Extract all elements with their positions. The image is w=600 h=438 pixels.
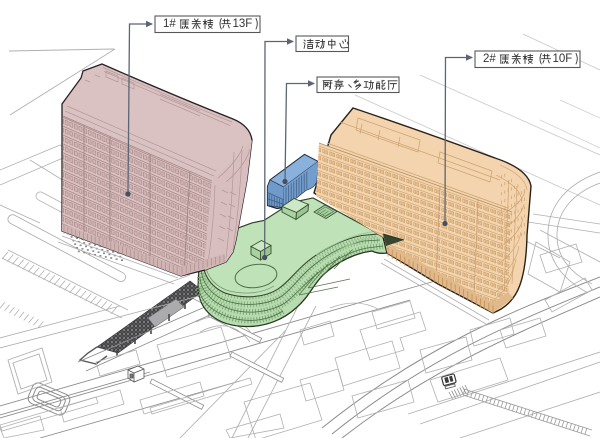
svg-text:13F: 13F bbox=[233, 18, 253, 30]
svg-text:10F: 10F bbox=[553, 53, 573, 65]
svg-text:1#: 1# bbox=[163, 18, 176, 30]
svg-text:2#: 2# bbox=[483, 53, 496, 65]
